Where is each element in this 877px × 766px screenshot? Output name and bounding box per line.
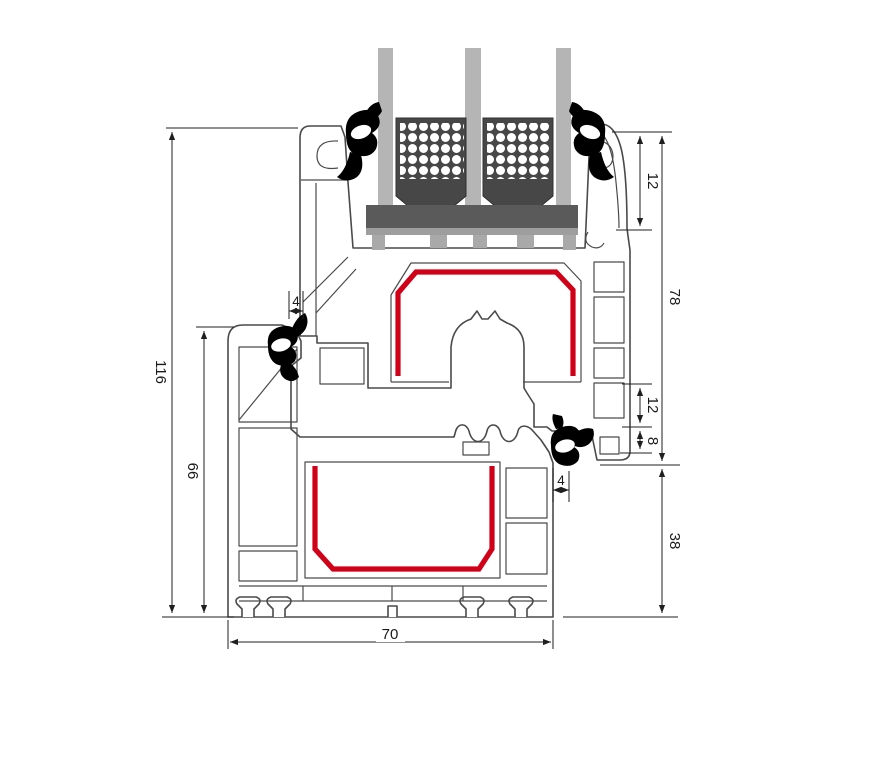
glazing-support-tab — [430, 235, 447, 248]
glass-pane-middle — [465, 48, 481, 206]
dim-label-frame-height: 66 — [184, 463, 201, 480]
dim-label-gasket-bottom: 4 — [557, 473, 565, 488]
dim-label-frame-face: 38 — [666, 533, 683, 550]
profile-section-canvas: 116 66 12 78 12 8 38 4 4 70 — [0, 0, 877, 766]
glazing-block — [366, 205, 578, 228]
glass-pane-inner — [556, 48, 571, 206]
dim-label-overall-height: 116 — [152, 360, 169, 384]
desiccant-dots — [487, 123, 551, 179]
profile-cross-section-drawing: 116 66 12 78 12 8 38 4 4 70 — [0, 0, 877, 766]
sash-chamber — [320, 348, 364, 384]
glazing-support-tab — [517, 235, 534, 248]
glazing-support-tab — [473, 235, 487, 248]
dim-label-gasket-top: 4 — [292, 294, 300, 309]
dim-label-step: 8 — [644, 437, 661, 445]
dim-label-profile-width: 70 — [382, 626, 399, 643]
glazing-support-tab — [563, 235, 576, 250]
glazing-support-tab — [372, 235, 385, 250]
dim-label-sash-height: 78 — [666, 289, 683, 306]
desiccant-dots — [400, 123, 464, 179]
mounting-notch — [388, 606, 397, 617]
glass-pane-outer — [378, 48, 393, 206]
dim-label-glazing-depth: 12 — [644, 173, 661, 190]
dim-label-hardware-groove: 12 — [644, 397, 661, 414]
glazing-bridge — [366, 228, 578, 235]
glazing-unit — [366, 48, 578, 250]
